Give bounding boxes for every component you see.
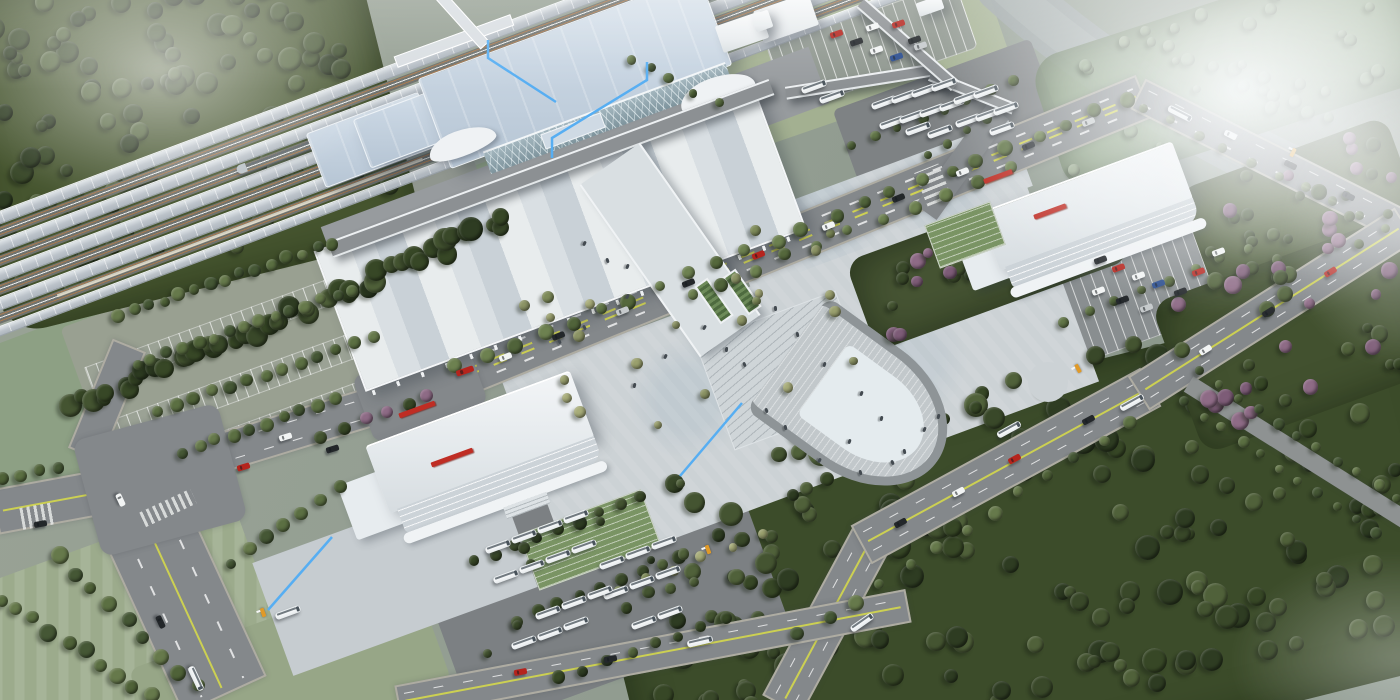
annotation-lines [0, 0, 1400, 700]
annotation-leader-line [680, 403, 742, 476]
annotation-leader-line [268, 537, 332, 610]
annotation-leader-line [552, 62, 647, 158]
aerial-render-station-complex [0, 0, 1400, 700]
annotation-leader-line [488, 40, 556, 102]
